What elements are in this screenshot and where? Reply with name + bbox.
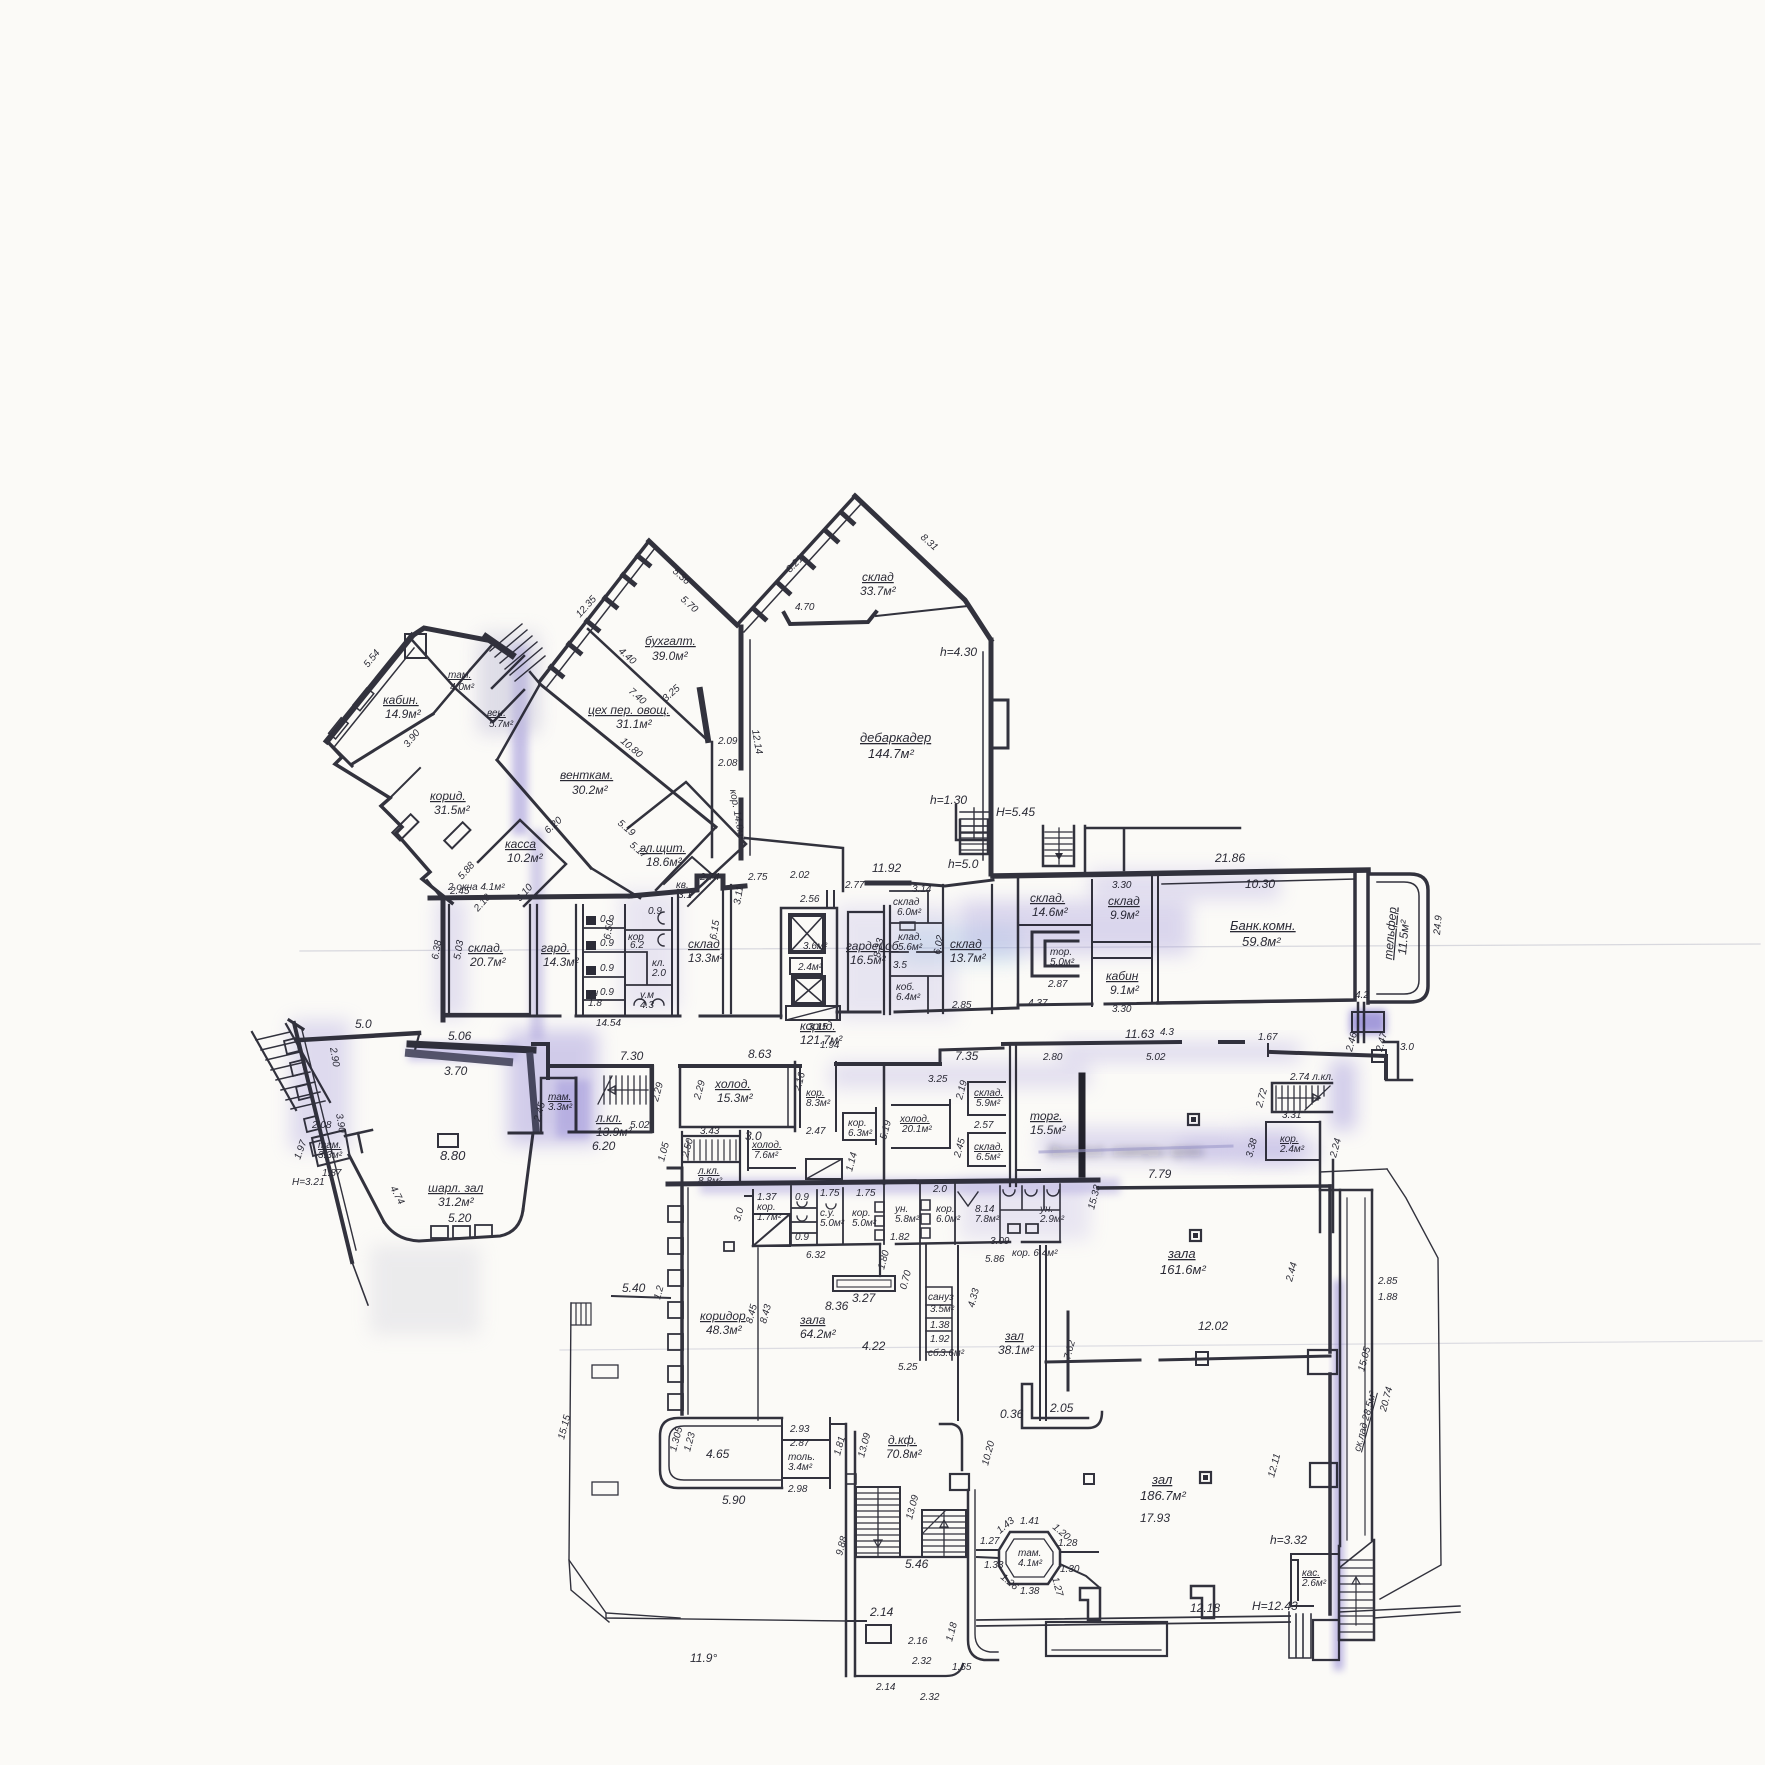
svg-text:1.75: 1.75 bbox=[856, 1188, 876, 1199]
svg-text:3.31: 3.31 bbox=[1282, 1110, 1301, 1121]
svg-text:30.2м²: 30.2м² bbox=[572, 783, 609, 797]
svg-text:39.0м²: 39.0м² bbox=[652, 649, 689, 663]
svg-text:1.38: 1.38 bbox=[930, 1320, 950, 1331]
svg-text:59.8м²: 59.8м² bbox=[1242, 934, 1281, 949]
svg-text:h=4.30: h=4.30 bbox=[940, 645, 977, 659]
svg-text:гард.: гард. bbox=[541, 941, 570, 955]
svg-text:18.6м²: 18.6м² bbox=[646, 855, 683, 869]
svg-text:5.40: 5.40 bbox=[622, 1281, 646, 1295]
svg-text:склад.: склад. bbox=[1030, 891, 1065, 905]
svg-text:1.82: 1.82 bbox=[890, 1232, 910, 1243]
svg-text:0.36: 0.36 bbox=[1000, 1407, 1024, 1421]
svg-text:2.14: 2.14 bbox=[869, 1605, 894, 1619]
svg-text:2.0: 2.0 bbox=[932, 1184, 947, 1195]
svg-text:4.3: 4.3 bbox=[640, 1000, 654, 1011]
svg-text:коридор: коридор bbox=[700, 1309, 746, 1323]
svg-text:1.87: 1.87 bbox=[322, 1168, 342, 1179]
svg-text:зала: зала bbox=[1167, 1246, 1196, 1261]
svg-text:5.0м²: 5.0м² bbox=[852, 1218, 877, 1229]
svg-text:2.85: 2.85 bbox=[1377, 1276, 1398, 1287]
svg-text:склад: склад bbox=[862, 570, 894, 584]
svg-text:3.0: 3.0 bbox=[1400, 1042, 1414, 1053]
svg-text:3.27: 3.27 bbox=[852, 1291, 877, 1305]
svg-text:5.7м²: 5.7м² bbox=[489, 719, 514, 730]
svg-text:зала: зала bbox=[799, 1313, 826, 1327]
svg-text:кабин.: кабин. bbox=[383, 693, 419, 707]
svg-text:2.56: 2.56 bbox=[799, 894, 820, 905]
svg-text:1.65: 1.65 bbox=[952, 1662, 972, 1673]
svg-text:2.74 л.кл.: 2.74 л.кл. bbox=[1289, 1072, 1334, 1083]
svg-text:1.27: 1.27 bbox=[980, 1536, 1000, 1547]
svg-text:2.74: 2.74 bbox=[699, 872, 720, 883]
svg-text:склад.: склад. bbox=[468, 941, 503, 955]
svg-text:2.05: 2.05 bbox=[1049, 1401, 1074, 1415]
svg-text:там.: там. bbox=[448, 670, 471, 681]
svg-text:1.33: 1.33 bbox=[984, 1560, 1004, 1571]
svg-text:зал: зал bbox=[1151, 1472, 1173, 1487]
svg-text:3.5: 3.5 bbox=[893, 960, 907, 971]
svg-text:дебаркадер: дебаркадер bbox=[860, 730, 931, 745]
svg-text:7.30: 7.30 bbox=[620, 1049, 644, 1063]
svg-text:7.6м²: 7.6м² bbox=[754, 1150, 779, 1161]
svg-text:2.02: 2.02 bbox=[789, 870, 810, 881]
svg-text:13.3м²: 13.3м² bbox=[688, 951, 725, 965]
svg-text:шарл. зал: шарл. зал bbox=[428, 1181, 483, 1195]
svg-text:1.7м²: 1.7м² bbox=[757, 1212, 782, 1223]
svg-text:6.20: 6.20 bbox=[592, 1139, 616, 1153]
svg-text:38.1м²: 38.1м² bbox=[998, 1343, 1035, 1357]
svg-text:14.3м²: 14.3м² bbox=[543, 955, 580, 969]
svg-text:корид.: корид. bbox=[800, 1019, 836, 1033]
svg-text:2.08: 2.08 bbox=[717, 758, 738, 769]
svg-text:3.4м²: 3.4м² bbox=[788, 1462, 813, 1473]
svg-text:0.9: 0.9 bbox=[600, 938, 614, 949]
svg-text:0.9: 0.9 bbox=[795, 1192, 809, 1203]
svg-text:касса: касса bbox=[505, 837, 536, 851]
svg-text:3.43: 3.43 bbox=[700, 1126, 720, 1137]
svg-text:9.9м²: 9.9м² bbox=[1110, 908, 1140, 922]
svg-text:вен.: вен. bbox=[487, 708, 506, 719]
svg-text:8.63: 8.63 bbox=[748, 1047, 772, 1061]
svg-text:14.9м²: 14.9м² bbox=[385, 707, 422, 721]
svg-text:48.3м²: 48.3м² bbox=[706, 1323, 743, 1337]
svg-text:5.02: 5.02 bbox=[1146, 1052, 1166, 1063]
svg-text:Банк.комн.: Банк.комн. bbox=[1230, 918, 1296, 933]
svg-text:2.32: 2.32 bbox=[911, 1656, 932, 1667]
svg-text:2.9м²: 2.9м² bbox=[1039, 1214, 1065, 1225]
svg-text:14.6м²: 14.6м² bbox=[1032, 905, 1069, 919]
svg-text:2.16: 2.16 bbox=[907, 1636, 928, 1647]
svg-text:2.87: 2.87 bbox=[1047, 979, 1068, 990]
svg-text:6.3м²: 6.3м² bbox=[848, 1128, 873, 1139]
svg-text:9.1м²: 9.1м² bbox=[1110, 983, 1140, 997]
svg-text:4.1м²: 4.1м² bbox=[1018, 1558, 1043, 1569]
svg-text:6.5м²: 6.5м² bbox=[976, 1152, 1001, 1163]
svg-text:венткам.: венткам. bbox=[560, 768, 613, 782]
svg-text:8.80: 8.80 bbox=[440, 1148, 466, 1163]
svg-text:7.35: 7.35 bbox=[955, 1049, 979, 1063]
svg-text:2.75: 2.75 bbox=[747, 872, 768, 883]
svg-text:2.98: 2.98 bbox=[787, 1484, 808, 1495]
svg-text:5.0: 5.0 bbox=[355, 1017, 372, 1031]
svg-text:4.2: 4.2 bbox=[1355, 990, 1369, 1001]
svg-text:2.6м²: 2.6м² bbox=[1301, 1578, 1327, 1589]
svg-text:5.86: 5.86 bbox=[985, 1254, 1005, 1265]
svg-text:7.79: 7.79 bbox=[1148, 1167, 1172, 1181]
svg-text:12.18: 12.18 bbox=[1190, 1601, 1220, 1615]
svg-text:2.4м²: 2.4м² bbox=[797, 962, 823, 973]
svg-text:1.30: 1.30 bbox=[1060, 1564, 1080, 1575]
svg-text:склад: склад bbox=[1108, 894, 1140, 908]
svg-text:1.67: 1.67 bbox=[1258, 1032, 1278, 1043]
svg-text:1.38: 1.38 bbox=[1020, 1586, 1040, 1597]
svg-text:10.2м²: 10.2м² bbox=[507, 851, 544, 865]
svg-text:6.2: 6.2 bbox=[630, 940, 644, 951]
svg-text:2.45: 2.45 bbox=[449, 886, 470, 897]
svg-text:4.70: 4.70 bbox=[795, 602, 815, 613]
svg-text:1.41: 1.41 bbox=[1020, 1516, 1039, 1527]
svg-text:13.9м²: 13.9м² bbox=[596, 1125, 633, 1139]
svg-text:0.9: 0.9 bbox=[648, 906, 662, 917]
svg-text:5.02: 5.02 bbox=[630, 1120, 650, 1131]
svg-text:186.7м²: 186.7м² bbox=[1140, 1488, 1186, 1503]
svg-text:31.5м²: 31.5м² bbox=[434, 803, 471, 817]
svg-text:4.3: 4.3 bbox=[1160, 1027, 1174, 1038]
svg-text:2.09: 2.09 bbox=[717, 736, 738, 747]
svg-text:бухгалт.: бухгалт. bbox=[645, 634, 696, 648]
svg-text:л.кл.: л.кл. bbox=[595, 1111, 622, 1125]
svg-text:2.0: 2.0 bbox=[651, 968, 666, 979]
svg-text:сануз: сануз bbox=[928, 1292, 954, 1303]
svg-text:3.3м²: 3.3м² bbox=[548, 1102, 573, 1113]
svg-text:2.77: 2.77 bbox=[844, 880, 865, 891]
svg-text:0.9: 0.9 bbox=[600, 914, 614, 925]
svg-text:2.87: 2.87 bbox=[789, 1438, 810, 1449]
svg-text:8.3м²: 8.3м² bbox=[806, 1098, 831, 1109]
svg-text:H=3.21: H=3.21 bbox=[292, 1177, 325, 1188]
svg-text:11.92: 11.92 bbox=[872, 861, 901, 875]
svg-text:5.8м²: 5.8м² bbox=[895, 1214, 920, 1225]
svg-text:64.2м²: 64.2м² bbox=[800, 1327, 837, 1341]
svg-text:33.7м²: 33.7м² bbox=[860, 584, 897, 598]
svg-text:14.54: 14.54 bbox=[596, 1018, 621, 1029]
svg-text:холод.: холод. bbox=[714, 1077, 751, 1091]
svg-text:3.6м²: 3.6м² bbox=[803, 941, 828, 952]
svg-text:4.0м²: 4.0м² bbox=[450, 682, 475, 693]
svg-text:3.30: 3.30 bbox=[1112, 1004, 1132, 1015]
svg-text:кабин: кабин bbox=[1106, 969, 1139, 983]
svg-text:4.22: 4.22 bbox=[862, 1339, 886, 1353]
svg-text:2.08: 2.08 bbox=[311, 1120, 332, 1131]
svg-text:1.92: 1.92 bbox=[930, 1334, 950, 1345]
svg-text:2.14: 2.14 bbox=[875, 1682, 896, 1693]
svg-text:5.0м²: 5.0м² bbox=[1050, 957, 1075, 968]
svg-text:1.8: 1.8 bbox=[588, 998, 602, 1009]
svg-text:цех пер. овощ.: цех пер. овощ. bbox=[588, 703, 670, 717]
svg-text:склад: склад bbox=[950, 937, 982, 951]
svg-text:3.70: 3.70 bbox=[444, 1064, 468, 1078]
svg-text:H=5.45: H=5.45 bbox=[996, 805, 1035, 819]
svg-text:13.7м²: 13.7м² bbox=[950, 951, 987, 965]
svg-text:2.47: 2.47 bbox=[805, 1126, 826, 1137]
svg-text:6.0м²: 6.0м² bbox=[936, 1214, 961, 1225]
svg-text:7.8м²: 7.8м² bbox=[975, 1214, 1000, 1225]
svg-text:161.6м²: 161.6м² bbox=[1160, 1262, 1206, 1277]
svg-text:1.28: 1.28 bbox=[1058, 1538, 1078, 1549]
svg-text:15.3м²: 15.3м² bbox=[717, 1091, 754, 1105]
svg-text:144.7м²: 144.7м² bbox=[868, 746, 914, 761]
svg-text:0.9: 0.9 bbox=[600, 963, 614, 974]
svg-text:6.4м²: 6.4м² bbox=[896, 992, 921, 1003]
svg-text:3.14: 3.14 bbox=[912, 884, 932, 895]
svg-text:4.65: 4.65 bbox=[706, 1447, 730, 1461]
svg-text:зал: зал bbox=[1004, 1329, 1024, 1343]
svg-text:12.02: 12.02 bbox=[1198, 1319, 1228, 1333]
svg-text:h=1.30: h=1.30 bbox=[930, 793, 967, 807]
svg-text:6.32: 6.32 bbox=[806, 1250, 826, 1261]
svg-text:5.9м²: 5.9м² bbox=[976, 1098, 1001, 1109]
svg-text:3.25: 3.25 bbox=[928, 1074, 948, 1085]
svg-text:2.57: 2.57 bbox=[973, 1120, 994, 1131]
svg-text:д.кф.: д.кф. bbox=[888, 1433, 917, 1447]
svg-text:11.63: 11.63 bbox=[1125, 1027, 1154, 1041]
svg-text:20.7м²: 20.7м² bbox=[469, 955, 507, 969]
svg-text:17.93: 17.93 bbox=[1140, 1511, 1170, 1525]
svg-text:31.1м²: 31.1м² bbox=[616, 717, 653, 731]
svg-text:2.4м²: 2.4м² bbox=[1279, 1144, 1305, 1155]
svg-text:31.2м²: 31.2м² bbox=[438, 1195, 475, 1209]
svg-text:h=5.0: h=5.0 bbox=[948, 857, 979, 871]
svg-text:10.30: 10.30 bbox=[1245, 877, 1275, 891]
svg-text:торг.: торг. bbox=[1030, 1109, 1062, 1123]
svg-text:5.0м²: 5.0м² bbox=[820, 1218, 845, 1229]
svg-text:8.36: 8.36 bbox=[825, 1299, 849, 1313]
svg-text:2.80: 2.80 bbox=[1042, 1052, 1063, 1063]
svg-text:15.5м²: 15.5м² bbox=[1030, 1123, 1067, 1137]
svg-text:70.8м²: 70.8м² bbox=[886, 1447, 923, 1461]
svg-text:0.9: 0.9 bbox=[600, 987, 614, 998]
svg-text:5.90: 5.90 bbox=[722, 1493, 746, 1507]
svg-text:h=3.32: h=3.32 bbox=[1270, 1533, 1307, 1547]
svg-text:3.5м²: 3.5м² bbox=[930, 1304, 955, 1315]
svg-text:3.3м²: 3.3м² bbox=[318, 1150, 343, 1161]
svg-text:1.88: 1.88 bbox=[1378, 1292, 1398, 1303]
svg-text:2.32: 2.32 bbox=[919, 1692, 940, 1703]
svg-text:5.46: 5.46 bbox=[905, 1557, 929, 1571]
svg-text:20.1м²: 20.1м² bbox=[901, 1124, 932, 1135]
svg-text:11.9°: 11.9° bbox=[690, 1651, 717, 1665]
svg-text:6.0м²: 6.0м² bbox=[897, 907, 922, 918]
svg-text:5.20: 5.20 bbox=[448, 1211, 472, 1225]
svg-text:H=12.43: H=12.43 bbox=[1252, 1599, 1298, 1613]
svg-text:1.94: 1.94 bbox=[820, 1040, 840, 1051]
svg-text:0.9: 0.9 bbox=[795, 1232, 809, 1243]
svg-text:корид.: корид. bbox=[430, 789, 466, 803]
svg-text:21.86: 21.86 bbox=[1214, 851, 1245, 865]
svg-text:5.06: 5.06 bbox=[448, 1029, 472, 1043]
svg-text:3.30: 3.30 bbox=[1112, 880, 1132, 891]
svg-text:24.9: 24.9 bbox=[1432, 914, 1445, 936]
svg-text:3.6м²: 3.6м² bbox=[940, 1348, 965, 1359]
svg-text:5.6м²: 5.6м² bbox=[898, 942, 923, 953]
svg-text:1.75: 1.75 bbox=[820, 1188, 840, 1199]
svg-text:2.93: 2.93 bbox=[789, 1424, 810, 1435]
svg-text:кор. 6.4м²: кор. 6.4м² bbox=[1012, 1248, 1058, 1259]
svg-text:5.25: 5.25 bbox=[898, 1362, 918, 1373]
